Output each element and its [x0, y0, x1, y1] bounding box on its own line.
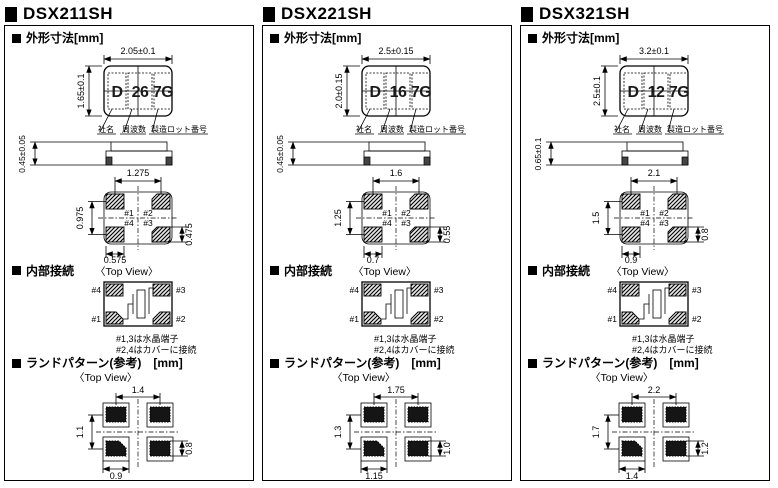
dim-land-pad-h: 1.0	[428, 441, 452, 456]
package-bottom-view: #1 #2 #4 #3	[614, 186, 694, 250]
marking-labels: 社名 周波数 製造ロット番号	[97, 109, 208, 134]
int-pin-top-left: #4	[608, 285, 618, 295]
note-crystal-terminals: #1,3は水晶端子	[116, 334, 253, 345]
bv-pitch-x-dim: 2.1	[648, 168, 661, 178]
marking-label-company: 社名	[614, 124, 630, 134]
top-view-label: 〈Top View〉	[353, 265, 416, 280]
land-pads	[96, 399, 180, 467]
int-pin-bottom-left: #1	[608, 314, 618, 324]
bv-pin-top-left: #1	[124, 208, 134, 218]
land-pattern-drawing: 2.2	[528, 385, 768, 481]
land-pad-h-dim: 0.8	[184, 442, 194, 455]
bv-pad-h-dim: 0.8	[700, 228, 710, 241]
bv-pin-bottom-right: #3	[659, 218, 669, 228]
marking-company-char: D	[111, 84, 122, 101]
dim-body-height: 1.65±0.1	[76, 66, 102, 116]
marking-label-frequency: 周波数	[638, 124, 662, 134]
dim-land-pad-h: 1.2	[686, 441, 710, 456]
land-section-title: ランドパターン(参考) [mm]	[270, 356, 511, 371]
marking-company-char: D	[369, 84, 380, 101]
product-title: DSX211SH	[23, 4, 113, 24]
product-panel: 外形寸法[mm] 2.5±0.15 2.0±0.15	[262, 25, 512, 481]
package-bottom-view: #1 #2 #4 #3	[98, 186, 178, 250]
section-bullet-square	[528, 266, 537, 275]
bv-pin-bottom-left: #4	[382, 218, 392, 228]
land-pattern-drawing: 1.4	[12, 385, 252, 481]
internal-connection-drawing: #4 #3 #1 #2	[270, 279, 510, 333]
int-pin-bottom-left: #1	[350, 314, 360, 324]
product-header: DSX211SH	[5, 3, 254, 25]
land-pad-h-dim: 1.2	[700, 442, 710, 455]
section-bullet-square	[12, 34, 21, 43]
package-side-view: 0.65±0.1	[533, 137, 688, 170]
package-top-view: D 26 7G	[104, 66, 173, 116]
land-pitch-x-dim: 2.2	[648, 385, 661, 395]
bv-pad-w-dim: 0.575	[104, 255, 127, 264]
int-pin-bottom-left: #1	[92, 314, 102, 324]
internal-package	[620, 282, 688, 326]
int-pin-top-right: #3	[692, 285, 702, 295]
product-column: DSX321SH 外形寸法[mm] 3.2±0.1 2.5±0.1	[520, 3, 770, 481]
product-column: DSX221SH 外形寸法[mm] 2.5±0.15 2.0±0.15	[262, 3, 512, 481]
product-title: DSX221SH	[281, 4, 372, 24]
outline-section-title: 外形寸法[mm]	[270, 31, 511, 46]
internal-section-label: 内部接続	[542, 264, 590, 279]
outline-drawing: 2.5±0.15 2.0±0.15	[270, 46, 510, 264]
land-pad-w-dim: 1.15	[365, 471, 383, 481]
note-cover-connection: #2,4はカバーに接続	[374, 345, 511, 356]
body-width-dim: 3.2±0.1	[639, 46, 669, 56]
note-crystal-terminals: #1,3は水晶端子	[374, 334, 511, 345]
int-pin-top-left: #4	[92, 285, 102, 295]
outline-section-title: 外形寸法[mm]	[12, 31, 253, 46]
section-bullet-square	[12, 359, 21, 368]
internal-section-title: 内部接続 〈Top View〉	[12, 264, 253, 279]
top-view-label: 〈Top View〉	[611, 265, 674, 280]
page: DSX211SH 外形寸法[mm] 2.05±0.1 1.65±0.1	[0, 0, 778, 481]
bv-pin-bottom-right: #3	[401, 218, 411, 228]
outline-section-label: 外形寸法[mm]	[26, 31, 103, 46]
dim-body-width: 2.05±0.1	[104, 46, 172, 64]
section-bullet-square	[528, 34, 537, 43]
land-pattern-drawing: 1.75	[270, 385, 510, 481]
thickness-dim: 0.65±0.1	[533, 137, 543, 170]
bv-pad-h-dim: 0.475	[184, 223, 194, 246]
top-view-label: 〈Top View〉	[590, 372, 769, 385]
outline-drawing: 3.2±0.1 2.5±0.1	[528, 46, 768, 264]
land-section-title: ランドパターン(参考) [mm]	[528, 356, 769, 371]
marking-label-lot: 製造ロット番号	[151, 124, 207, 134]
outline-section-title: 外形寸法[mm]	[528, 31, 769, 46]
land-pitch-y-dim: 1.1	[75, 426, 85, 439]
dim-bv-pad-w: 0.575	[104, 246, 127, 264]
int-pin-bottom-right: #2	[434, 314, 444, 324]
note-cover-connection: #2,4はカバーに接続	[116, 345, 253, 356]
land-pitch-y-dim: 1.3	[333, 426, 343, 439]
marking-label-frequency: 周波数	[122, 124, 146, 134]
package-top-view: D 16 7G	[362, 66, 431, 116]
crystal-symbol	[381, 288, 412, 319]
dim-bv-pad-h: 0.8	[686, 227, 710, 242]
section-bullet-square	[270, 359, 279, 368]
land-pads	[354, 399, 438, 467]
section-bullet-square	[528, 359, 537, 368]
land-section-label: ランドパターン(参考) [mm]	[26, 356, 183, 371]
dim-body-height: 2.5±0.1	[592, 66, 618, 116]
marking-lot-char: 7G	[411, 84, 431, 101]
land-pitch-x-dim: 1.75	[387, 385, 405, 395]
marking-company-char: D	[627, 84, 638, 101]
note-cover-connection: #2,4はカバーに接続	[632, 345, 769, 356]
marking-label-frequency: 周波数	[380, 124, 404, 134]
bv-pitch-x-dim: 1.275	[127, 168, 150, 178]
internal-section-label: 内部接続	[284, 264, 332, 279]
internal-section-label: 内部接続	[26, 264, 74, 279]
internal-connection-notes: #1,3は水晶端子 #2,4はカバーに接続	[632, 334, 769, 355]
package-side-view: 0.45±0.05	[275, 135, 430, 173]
bv-pin-top-right: #2	[401, 208, 411, 218]
body-height-dim: 2.0±0.15	[334, 74, 344, 109]
bv-pitch-y-dim: 1.5	[591, 212, 601, 225]
thickness-dim: 0.45±0.05	[275, 135, 285, 173]
marking-labels: 社名 周波数 製造ロット番号	[355, 109, 466, 134]
top-view-label: 〈Top View〉	[95, 265, 158, 280]
marking-label-lot: 製造ロット番号	[409, 124, 465, 134]
dim-land-pad-w: 1.4	[619, 461, 645, 481]
marking-frequency-char: 26	[132, 84, 149, 101]
top-view-label: 〈Top View〉	[74, 372, 253, 385]
dim-bv-pad-w: 0.9	[622, 246, 640, 264]
product-column: DSX211SH 外形寸法[mm] 2.05±0.1 1.65±0.1	[4, 3, 254, 481]
internal-connection-drawing: #4 #3 #1 #2	[528, 279, 768, 333]
land-pads	[612, 399, 696, 467]
land-section-label: ランドパターン(参考) [mm]	[284, 356, 441, 371]
section-bullet-square	[270, 266, 279, 275]
int-pin-top-left: #4	[350, 285, 360, 295]
dim-bv-pad-w: 0.7	[364, 246, 382, 264]
marking-label-company: 社名	[98, 124, 114, 134]
dim-land-pad-w: 1.15	[361, 461, 387, 481]
product-panel: 外形寸法[mm] 3.2±0.1 2.5±0.1	[520, 25, 770, 481]
int-pin-bottom-right: #2	[692, 314, 702, 324]
internal-connection-notes: #1,3は水晶端子 #2,4はカバーに接続	[374, 334, 511, 355]
bv-pitch-x-dim: 1.6	[390, 168, 403, 178]
bv-pin-top-right: #2	[143, 208, 153, 218]
outline-section-label: 外形寸法[mm]	[542, 31, 619, 46]
note-crystal-terminals: #1,3は水晶端子	[632, 334, 769, 345]
bv-pin-bottom-left: #4	[124, 218, 134, 228]
land-pad-h-dim: 1.0	[442, 442, 452, 455]
bv-pin-bottom-right: #3	[143, 218, 153, 228]
body-width-dim: 2.05±0.1	[121, 46, 156, 56]
marking-label-company: 社名	[356, 124, 372, 134]
crystal-symbol	[639, 288, 670, 319]
outline-section-label: 外形寸法[mm]	[284, 31, 361, 46]
marking-frequency-char: 16	[390, 84, 407, 101]
land-section-label: ランドパターン(参考) [mm]	[542, 356, 699, 371]
dim-body-height: 2.0±0.15	[334, 66, 360, 116]
dim-land-pad-h: 0.8	[170, 441, 194, 456]
land-pad-w-dim: 0.9	[110, 471, 123, 481]
top-view-label: 〈Top View〉	[332, 372, 511, 385]
int-pin-top-right: #3	[434, 285, 444, 295]
marking-frequency-char: 12	[648, 84, 665, 101]
bv-pin-top-right: #2	[659, 208, 669, 218]
header-bullet-square	[263, 7, 275, 22]
outline-drawing: 2.05±0.1 1.65±0.1	[12, 46, 252, 264]
package-bottom-view: #1 #2 #4 #3	[356, 186, 436, 250]
bv-pin-top-left: #1	[382, 208, 392, 218]
header-bullet-square	[521, 7, 533, 22]
land-pad-w-dim: 1.4	[626, 471, 639, 481]
bv-pin-top-left: #1	[640, 208, 650, 218]
crystal-symbol	[123, 288, 154, 319]
body-width-dim: 2.5±0.15	[379, 46, 414, 56]
package-top-view: D 12 7G	[620, 66, 689, 116]
bv-pad-h-dim: 0.55	[442, 226, 452, 244]
product-panel: 外形寸法[mm] 2.05±0.1 1.65±0.1	[4, 25, 254, 481]
product-header: DSX321SH	[521, 3, 770, 25]
thickness-dim: 0.45±0.05	[17, 135, 27, 173]
int-pin-top-right: #3	[176, 285, 186, 295]
bv-pad-w-dim: 0.9	[625, 255, 638, 264]
bv-pitch-y-dim: 0.975	[75, 207, 85, 230]
section-bullet-square	[270, 34, 279, 43]
product-title: DSX321SH	[539, 4, 630, 24]
marking-label-lot: 製造ロット番号	[667, 124, 723, 134]
bv-pitch-y-dim: 1.25	[333, 209, 343, 227]
internal-connection-notes: #1,3は水晶端子 #2,4はカバーに接続	[116, 334, 253, 355]
body-height-dim: 2.5±0.1	[592, 76, 602, 106]
header-bullet-square	[5, 7, 17, 22]
internal-section-title: 内部接続 〈Top View〉	[270, 264, 511, 279]
land-section-title: ランドパターン(参考) [mm]	[12, 356, 253, 371]
internal-section-title: 内部接続 〈Top View〉	[528, 264, 769, 279]
dim-bv-pad-h: 0.475	[170, 223, 194, 246]
land-pitch-x-dim: 1.4	[132, 385, 145, 395]
dim-body-width: 2.5±0.15	[362, 46, 430, 64]
product-header: DSX221SH	[263, 3, 512, 25]
section-bullet-square	[12, 266, 21, 275]
bv-pad-w-dim: 0.7	[367, 255, 380, 264]
internal-package	[362, 282, 430, 326]
internal-package	[104, 282, 172, 326]
dim-land-pad-w: 0.9	[103, 461, 129, 481]
marking-lot-char: 7G	[153, 84, 173, 101]
land-pitch-y-dim: 1.7	[591, 426, 601, 439]
dim-bv-pad-h: 0.55	[428, 226, 452, 244]
marking-labels: 社名 周波数 製造ロット番号	[613, 109, 724, 134]
bv-pin-bottom-left: #4	[640, 218, 650, 228]
internal-connection-drawing: #4 #3 #1 #2	[12, 279, 252, 333]
dim-body-width: 3.2±0.1	[620, 46, 688, 64]
int-pin-bottom-right: #2	[176, 314, 186, 324]
body-height-dim: 1.65±0.1	[76, 74, 86, 109]
marking-lot-char: 7G	[669, 84, 689, 101]
